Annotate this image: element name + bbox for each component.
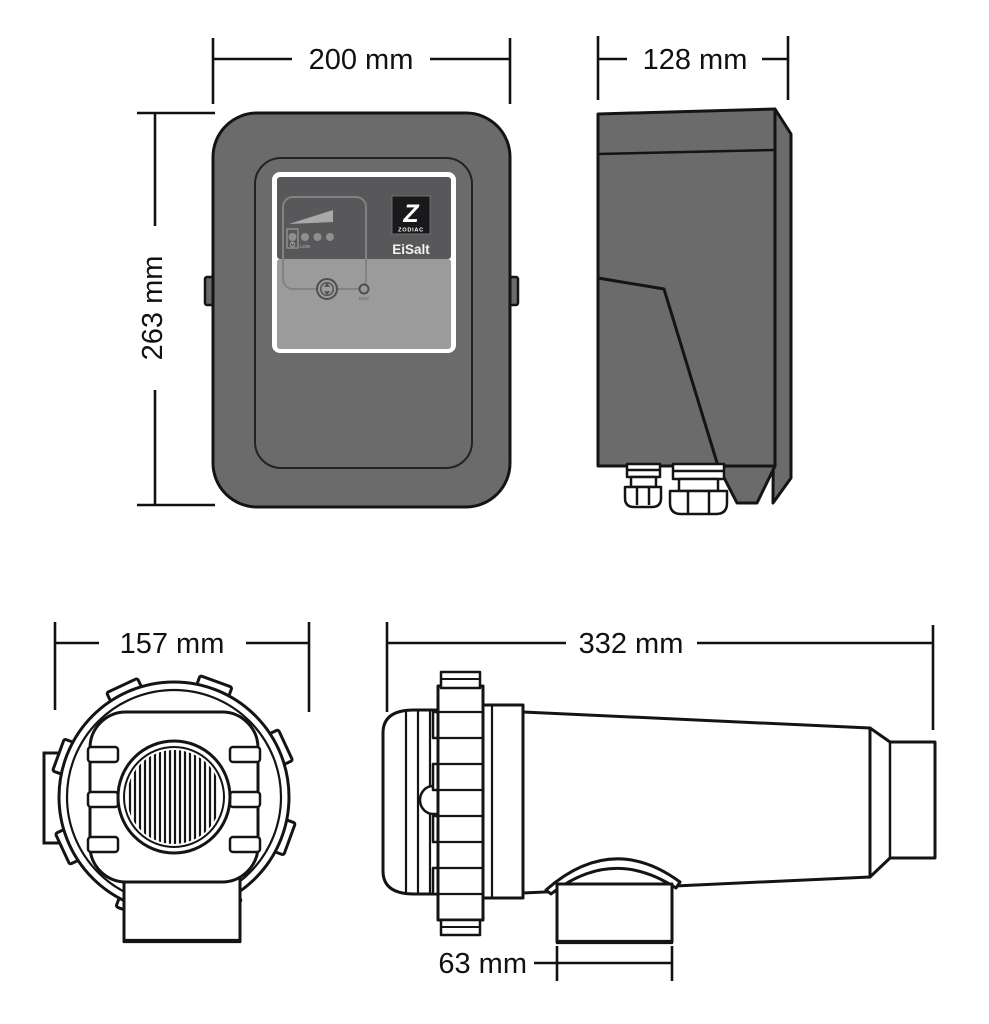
cell-collar — [483, 705, 523, 898]
electrode-clip — [88, 837, 118, 852]
model-name-text: EiSalt — [392, 242, 430, 257]
gland-nut — [625, 487, 661, 507]
electrode-clip — [230, 747, 260, 762]
cell-end-view — [44, 676, 295, 941]
salt-label: SALT — [359, 296, 370, 301]
electrode-clip — [88, 747, 118, 762]
salt-indicator-icon — [360, 285, 369, 294]
cell-side-view — [383, 672, 935, 942]
dimension-box-width: 200 mm — [213, 38, 510, 104]
cable-gland-small — [625, 464, 661, 507]
panel-lower-section — [277, 259, 451, 349]
gland-nut — [670, 491, 727, 514]
led-indicator-icon — [289, 233, 297, 241]
dim-label-cell-length: 332 mm — [579, 628, 684, 660]
led-indicator-icon — [314, 233, 322, 241]
outlet-pipe-end — [124, 877, 240, 941]
dimension-drawing-page: 200 mm 128 mm 263 mm — [0, 0, 989, 1024]
zodiac-logo-letter: Z — [402, 200, 420, 228]
gland-neck — [631, 477, 656, 487]
dimension-drawing: 200 mm 128 mm 263 mm — [0, 0, 989, 1024]
cable-gland-large — [670, 464, 727, 514]
dimension-outlet-width: 63 mm — [438, 946, 672, 981]
outlet-pipe — [557, 884, 672, 942]
cell-locking-ring — [433, 672, 487, 935]
led-indicator-icon — [301, 233, 309, 241]
electrode-clip — [230, 837, 260, 852]
low-label: LOW — [300, 244, 311, 249]
dim-label-outlet-width: 63 mm — [438, 948, 527, 980]
dim-label-cell-diameter: 157 mm — [120, 628, 225, 660]
ring-body — [438, 686, 483, 920]
dim-label-box-height: 263 mm — [137, 256, 169, 361]
zodiac-brand-text: ZODIAC — [398, 228, 424, 234]
control-box-side-view — [598, 109, 791, 514]
cell-inlet-connector — [870, 728, 935, 877]
control-box-front-view: LOW Z ZODIAC EiSalt SALT — [205, 113, 518, 507]
dimension-box-height: 263 mm — [137, 113, 215, 505]
enclosure-side-body — [598, 109, 775, 466]
cell-main-body — [523, 712, 870, 893]
electrode-clip — [88, 792, 118, 807]
dim-label-box-width: 200 mm — [309, 44, 414, 76]
gland-neck — [679, 479, 718, 491]
dimension-box-depth: 128 mm — [598, 36, 788, 100]
electrode-clip — [230, 792, 260, 807]
dim-label-box-depth: 128 mm — [643, 44, 748, 76]
led-indicator-icon — [326, 233, 334, 241]
